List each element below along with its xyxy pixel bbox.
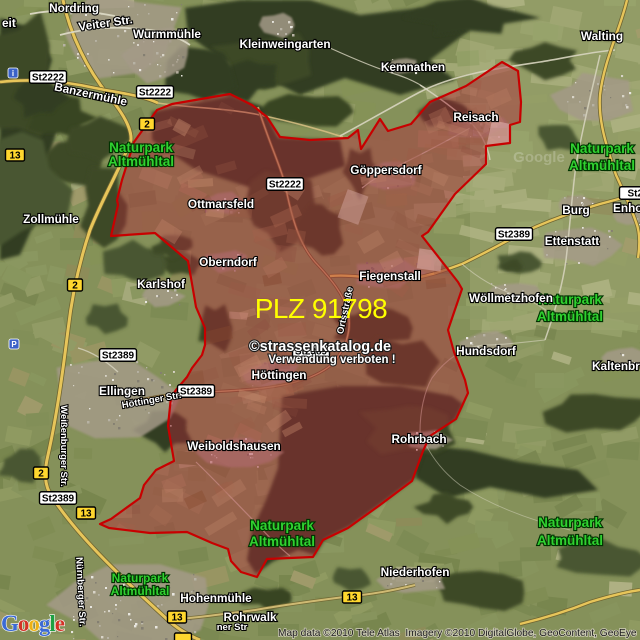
svg-text:Wurmmühle: Wurmmühle bbox=[133, 27, 201, 41]
svg-text:Kleinweingarten: Kleinweingarten bbox=[239, 37, 330, 51]
svg-text:St2222: St2222 bbox=[269, 180, 302, 191]
svg-text:Rohrbach: Rohrbach bbox=[391, 432, 446, 446]
svg-text:©strassenkatalog.de: ©strassenkatalog.de bbox=[249, 339, 391, 355]
svg-text:Oberndorf: Oberndorf bbox=[199, 255, 257, 269]
svg-text:i: i bbox=[12, 69, 14, 78]
svg-text:Burg: Burg bbox=[562, 203, 590, 217]
svg-text:Map data ©2010 Tele Atlas Ima: Map data ©2010 Tele Atlas Imagery ©2010 … bbox=[278, 628, 637, 639]
svg-text:Ellingen: Ellingen bbox=[99, 384, 145, 398]
svg-text:Google: Google bbox=[1, 611, 65, 636]
svg-text:13: 13 bbox=[346, 593, 358, 604]
svg-text:Kemnathen: Kemnathen bbox=[381, 60, 445, 74]
svg-text:13: 13 bbox=[80, 509, 92, 520]
svg-text:Ettenstatt: Ettenstatt bbox=[545, 234, 599, 248]
svg-text:Altmühltal: Altmühltal bbox=[108, 154, 174, 169]
svg-text:2: 2 bbox=[38, 469, 44, 480]
svg-text:Altmühltal: Altmühltal bbox=[569, 158, 635, 173]
svg-text:Karlshof: Karlshof bbox=[137, 277, 185, 291]
svg-text:St2389: St2389 bbox=[102, 351, 135, 362]
svg-text:Google: Google bbox=[513, 149, 565, 166]
svg-text:St2389: St2389 bbox=[42, 494, 75, 505]
svg-text:ner Str: ner Str bbox=[217, 622, 248, 633]
svg-text:13: 13 bbox=[171, 613, 183, 624]
svg-text:Naturpark: Naturpark bbox=[112, 571, 169, 585]
svg-text:Nordring: Nordring bbox=[49, 1, 99, 15]
svg-text:Göppersdorf: Göppersdorf bbox=[350, 163, 422, 177]
svg-text:2: 2 bbox=[144, 120, 150, 131]
svg-text:St2222: St2222 bbox=[139, 88, 172, 99]
svg-text:Naturpark: Naturpark bbox=[109, 140, 173, 155]
svg-text:Ottmarsfeld: Ottmarsfeld bbox=[188, 197, 254, 211]
svg-text:Enhofen: Enhofen bbox=[613, 201, 640, 215]
svg-text:Naturpark: Naturpark bbox=[570, 141, 634, 156]
svg-text:Hundsdorf: Hundsdorf bbox=[456, 344, 516, 358]
svg-text:P: P bbox=[11, 340, 17, 349]
svg-text:Altmühltal: Altmühltal bbox=[249, 534, 315, 549]
svg-text:PLZ 91798: PLZ 91798 bbox=[255, 293, 388, 324]
svg-text:Verwendung verboten !: Verwendung verboten ! bbox=[268, 354, 395, 366]
svg-text:Höttingen: Höttingen bbox=[251, 368, 306, 382]
svg-text:Hohenmühle: Hohenmühle bbox=[180, 591, 252, 605]
svg-text:Naturpark: Naturpark bbox=[250, 518, 314, 533]
svg-text:St2389: St2389 bbox=[498, 230, 531, 241]
svg-text:Kaltenbrunn: Kaltenbrunn bbox=[592, 359, 640, 373]
svg-text:Altmühltal: Altmühltal bbox=[537, 309, 603, 324]
svg-text:St2389: St2389 bbox=[180, 387, 213, 398]
svg-text:eit: eit bbox=[2, 16, 16, 30]
svg-text:Altmühltal: Altmühltal bbox=[537, 533, 603, 548]
svg-text:Niederhofen: Niederhofen bbox=[381, 565, 450, 579]
svg-text:Fiegenstall: Fiegenstall bbox=[359, 269, 421, 283]
svg-text:13: 13 bbox=[9, 151, 21, 162]
svg-text:Naturpark: Naturpark bbox=[538, 515, 602, 530]
svg-text:Altmühltal: Altmühltal bbox=[111, 584, 170, 598]
svg-text:Zollmühle: Zollmühle bbox=[23, 212, 79, 226]
svg-text:Weißenburger Str.: Weißenburger Str. bbox=[58, 405, 69, 487]
svg-text:Walting: Walting bbox=[581, 29, 623, 43]
svg-text:Weiboldshausen: Weiboldshausen bbox=[187, 439, 281, 453]
svg-text:St24: St24 bbox=[627, 189, 640, 200]
svg-text:Reisach: Reisach bbox=[453, 110, 498, 124]
svg-text:Wöllmetzhofen: Wöllmetzhofen bbox=[469, 291, 553, 305]
svg-text:2: 2 bbox=[72, 281, 78, 292]
